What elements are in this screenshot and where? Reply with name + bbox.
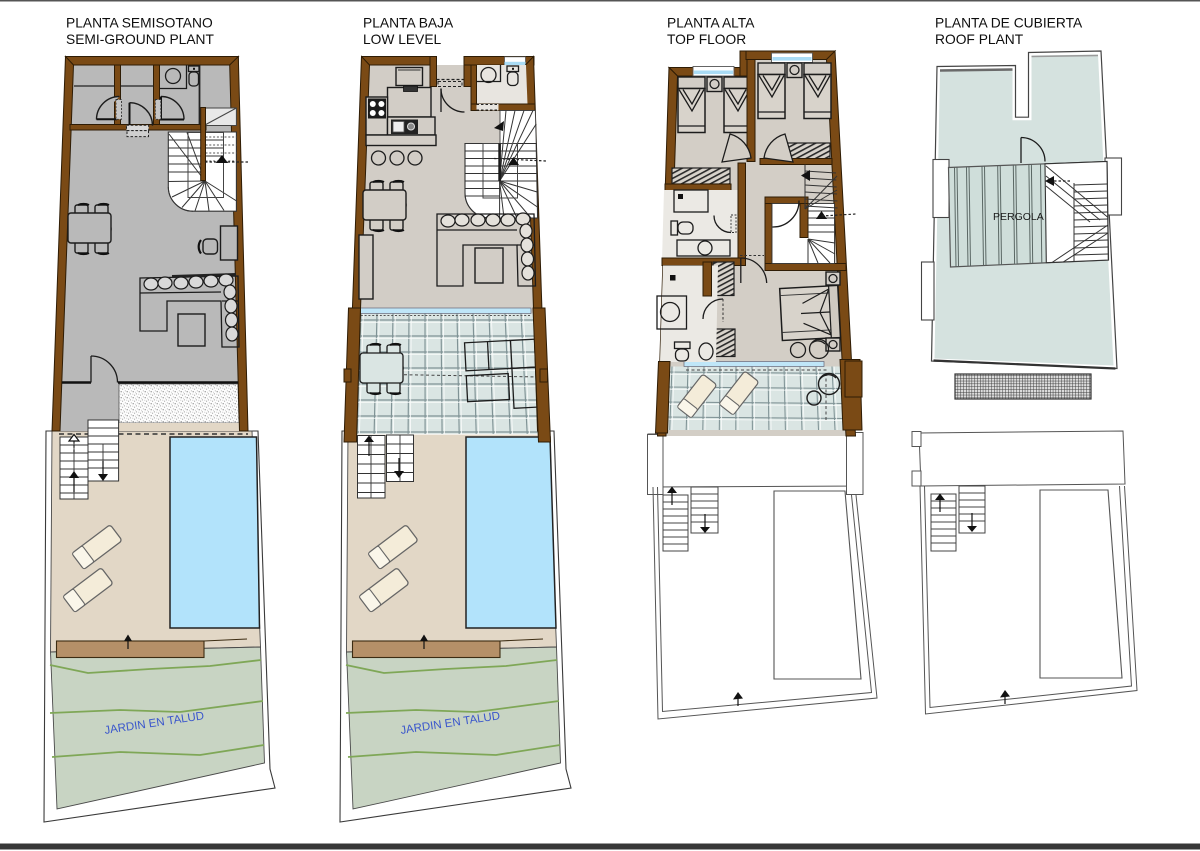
svg-text:TOP FLOOR: TOP FLOOR	[667, 32, 746, 47]
svg-text:SEMI-GROUND PLANT: SEMI-GROUND PLANT	[66, 32, 215, 47]
svg-text:LOW LEVEL: LOW LEVEL	[363, 32, 442, 47]
svg-text:PLANTA BAJA: PLANTA BAJA	[363, 16, 454, 31]
svg-text:PLANTA SEMISOTANO: PLANTA SEMISOTANO	[66, 16, 213, 31]
svg-text:PLANTA ALTA: PLANTA ALTA	[667, 16, 755, 31]
svg-text:ROOF PLANT: ROOF PLANT	[935, 32, 1024, 47]
svg-text:PLANTA DE CUBIERTA: PLANTA DE CUBIERTA	[935, 16, 1083, 31]
svg-text:PERGOLA: PERGOLA	[993, 211, 1044, 223]
